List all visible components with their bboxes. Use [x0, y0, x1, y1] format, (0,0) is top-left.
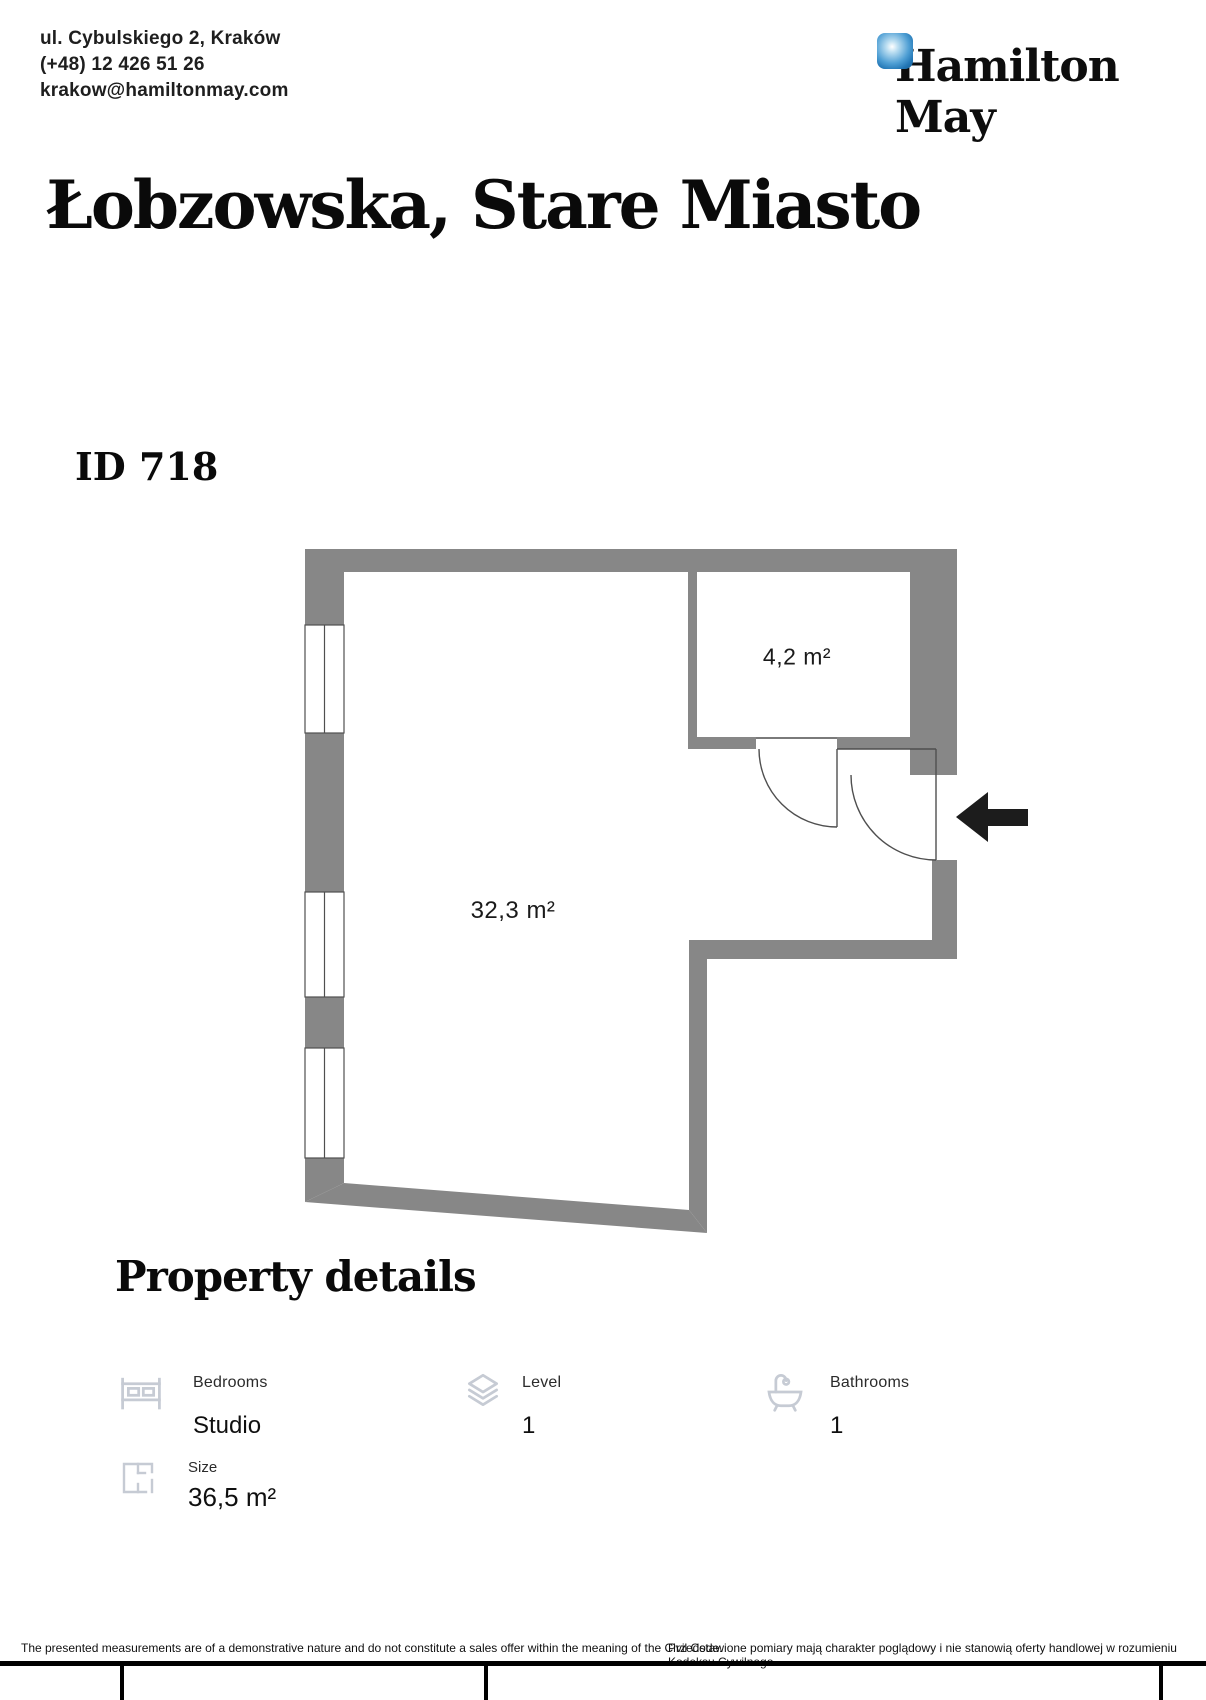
- bathtub-icon: [762, 1368, 808, 1416]
- hamilton-may-logo-icon: [877, 33, 913, 69]
- level-value: 1: [522, 1412, 535, 1440]
- size-value: 36,5 m²: [188, 1482, 276, 1513]
- agent-table-divider: [120, 1666, 124, 1700]
- disclaimer-en: The presented measurements are of a demo…: [21, 1641, 723, 1655]
- room-area-label-small: 4,2 m²: [763, 644, 831, 671]
- property-details-heading: Property details: [115, 1252, 476, 1301]
- brand-wordmark: Hamilton May: [895, 41, 1206, 143]
- level-label: Level: [522, 1374, 561, 1392]
- bathrooms-label: Bathrooms: [830, 1374, 909, 1392]
- entrance-arrow-icon: [956, 792, 1028, 842]
- agent-table-border: [0, 1661, 1206, 1666]
- room-area-label-main: 32,3 m²: [471, 897, 556, 925]
- page: ul. Cybulskiego 2, Kraków (+48) 12 426 5…: [0, 0, 1206, 1700]
- layers-icon: [462, 1370, 504, 1412]
- walls: [305, 549, 957, 1233]
- bathrooms-value: 1: [830, 1412, 843, 1440]
- bed-icon: [118, 1370, 164, 1416]
- floor-plan: [0, 0, 1206, 1700]
- bedrooms-value: Studio: [193, 1412, 261, 1440]
- size-label: Size: [188, 1459, 217, 1476]
- agent-table-divider: [1159, 1666, 1163, 1700]
- floorplan-icon: [118, 1458, 158, 1498]
- agent-table-divider: [484, 1666, 488, 1700]
- bedrooms-label: Bedrooms: [193, 1374, 268, 1392]
- interior-door: [756, 738, 837, 827]
